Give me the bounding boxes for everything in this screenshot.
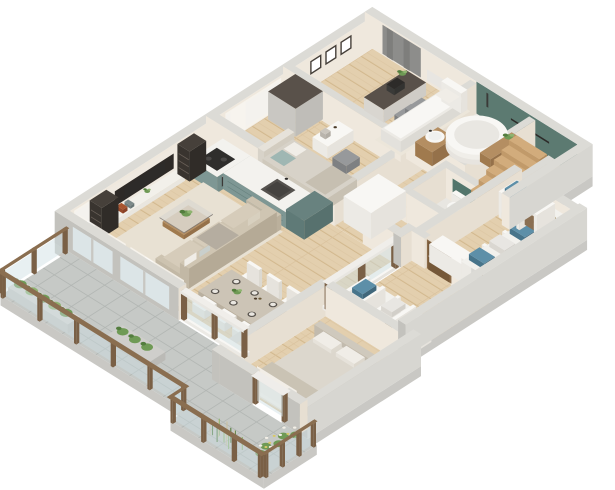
apartment-3d-render [0,0,615,490]
floor-plan-image [0,0,615,490]
